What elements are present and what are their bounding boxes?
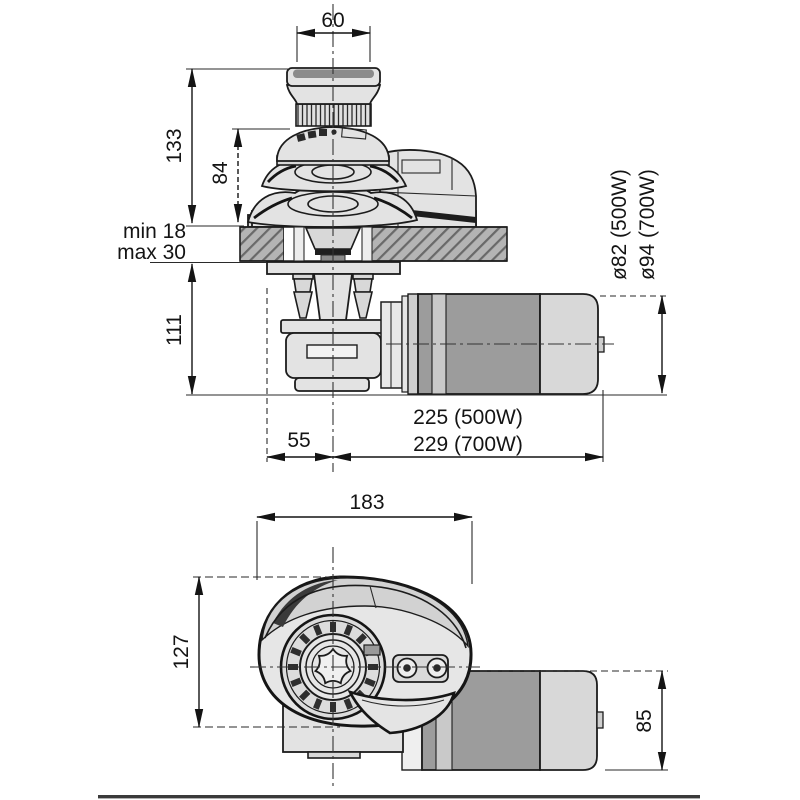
- drawing-page: 60 133 84 min 18 max 30 111 55 225 (500W…: [0, 0, 800, 800]
- dim-label-drum-width: 60: [321, 9, 344, 32]
- dim-label-motor-height: 85: [633, 709, 656, 732]
- dim-label-center-offset: 55: [287, 429, 310, 452]
- dim-label-deck-max: max 30: [117, 241, 186, 264]
- motor-side-view: [381, 294, 614, 394]
- motor-terminal-front: [597, 712, 603, 728]
- dim-label-length-700w: 229 (700W): [413, 433, 523, 456]
- dim-label-motor-dia-500w: ø82 (500W): [608, 169, 631, 280]
- dim-label-front-height: 127: [170, 634, 193, 669]
- motor-end-cap-front: [540, 671, 597, 770]
- front-view: 183 127 85: [170, 491, 668, 790]
- dim-label-overall-height: 133: [163, 128, 186, 163]
- bottom-border-line: [98, 795, 700, 798]
- dim-label-deck-min: min 18: [123, 220, 186, 243]
- gearbox-slot: [307, 345, 357, 358]
- stud-nut-left: [293, 274, 313, 318]
- dim-label-motor-dia-700w: ø94 (700W): [636, 169, 659, 280]
- dim-label-overall-width: 183: [349, 491, 384, 514]
- cover-center-hole: [331, 129, 336, 134]
- deck-cross-section: [240, 227, 507, 261]
- side-view: 60 133 84 min 18 max 30 111 55 225 (500W…: [117, 4, 668, 472]
- vent-slot: [319, 129, 327, 136]
- windlass-dimensional-drawing: 60 133 84 min 18 max 30 111 55 225 (500W…: [0, 0, 800, 800]
- bolt-center: [433, 664, 441, 672]
- pawl-detail: [364, 645, 380, 655]
- stud-nut-right: [353, 274, 373, 318]
- bolt-center: [403, 664, 411, 672]
- bolt-plate: [393, 655, 448, 682]
- gearbox-bottom-cap: [295, 378, 369, 391]
- mounting-stud: [294, 227, 304, 261]
- dim-label-gypsy-height: 84: [209, 161, 232, 185]
- dim-label-below-deck-height: 111: [163, 314, 186, 346]
- mounting-stud: [362, 227, 372, 261]
- dim-label-length-500w: 225 (500W): [413, 406, 523, 429]
- vent-slot: [308, 130, 317, 138]
